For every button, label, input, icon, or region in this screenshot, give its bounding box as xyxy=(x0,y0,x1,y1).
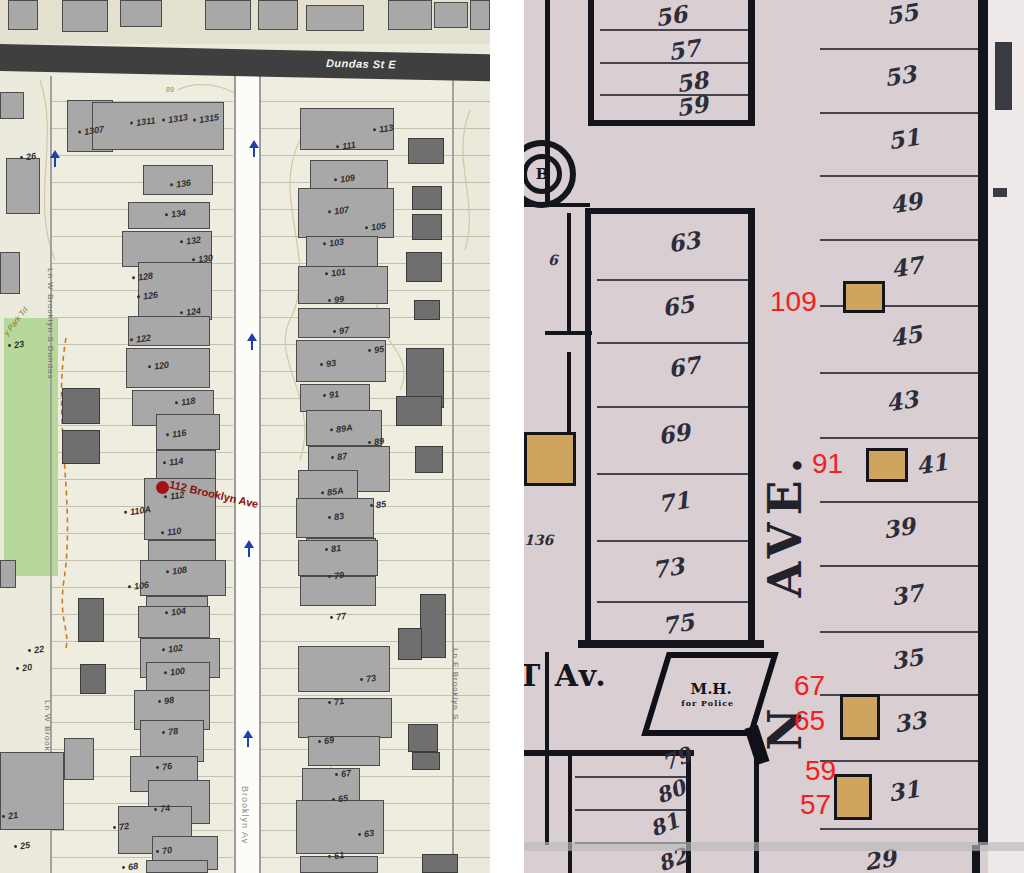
block-border-line xyxy=(567,213,571,335)
lot-number: 69 xyxy=(656,418,692,450)
building xyxy=(146,860,208,873)
contour-elevation-label: 89 xyxy=(166,86,174,93)
one-way-arrow-icon xyxy=(247,333,257,351)
lot-number: 55 xyxy=(884,0,920,29)
building xyxy=(412,214,442,240)
house-number-label: 68 xyxy=(121,861,138,873)
margin-building-fragment xyxy=(993,188,1007,197)
lane-w1-label: Ln W Brooklyn S Dundas xyxy=(46,268,55,379)
lot-line xyxy=(597,473,748,475)
lot-number: 39 xyxy=(881,512,917,544)
building xyxy=(420,594,446,658)
building xyxy=(408,138,444,164)
lot-number: 71 xyxy=(656,486,692,518)
lot-line xyxy=(820,175,978,177)
lot-line xyxy=(600,29,750,31)
building xyxy=(0,560,16,588)
wood-building-icon xyxy=(843,281,885,313)
building xyxy=(6,158,40,214)
edge-measure-label: 6 xyxy=(548,252,558,268)
lot-number: 67 xyxy=(666,351,702,383)
building xyxy=(396,396,442,426)
building xyxy=(412,186,442,210)
building xyxy=(414,300,440,320)
lot-number: 63 xyxy=(666,226,702,258)
lot-line xyxy=(820,239,978,241)
red-address-annotation: 109 xyxy=(770,286,817,318)
lot-number: 49 xyxy=(888,187,924,219)
block-border-line xyxy=(588,120,755,126)
red-address-annotation: 57 xyxy=(800,789,831,821)
lot-number: 56 xyxy=(653,0,689,31)
lot-number: 80 xyxy=(652,774,688,808)
lot-line xyxy=(820,48,978,50)
lot-line xyxy=(820,631,978,633)
lot-number: 45 xyxy=(888,320,924,352)
lot-number: 31 xyxy=(886,775,922,807)
building xyxy=(408,724,438,752)
building xyxy=(0,92,24,119)
lot-number: 59 xyxy=(674,90,710,122)
building xyxy=(120,0,162,27)
lot-number: 47 xyxy=(889,251,925,283)
block-border-line xyxy=(585,208,755,214)
building xyxy=(406,252,442,282)
building xyxy=(434,2,468,28)
block-border-line xyxy=(567,352,571,432)
lot-number: 81 xyxy=(646,807,682,841)
image-divider-gap xyxy=(490,0,524,873)
lot-number: 35 xyxy=(889,643,925,675)
block-border-line xyxy=(588,0,594,126)
block-border-line xyxy=(585,208,591,648)
modern-gis-map[interactable]: y Park Trl Dundas St E Ln W Brooklyn S D… xyxy=(0,0,490,873)
lot-line xyxy=(597,540,748,542)
corner-building-label: M.H. xyxy=(691,680,732,698)
margin-building-fragment xyxy=(995,42,1012,110)
selected-address-dot[interactable] xyxy=(156,481,169,494)
one-way-arrow-icon xyxy=(244,540,254,558)
lot-line xyxy=(820,112,978,114)
one-way-arrow-icon xyxy=(243,730,253,748)
block-border-line xyxy=(578,640,764,648)
building xyxy=(0,252,20,294)
building xyxy=(298,698,392,738)
lot-number: 73 xyxy=(650,552,686,584)
map-comparison-screenshot: y Park Trl Dundas St E Ln W Brooklyn S D… xyxy=(0,0,1024,873)
historic-atlas-map[interactable]: AVE. N B T Av. M.H. for Police 565758596… xyxy=(524,0,1024,873)
lane-east-line xyxy=(452,76,454,873)
lot-number: 53 xyxy=(882,60,918,92)
brooklyn-ave-road xyxy=(234,73,261,873)
lot-number: 43 xyxy=(884,385,920,417)
lot-number: 57 xyxy=(666,34,702,66)
red-address-annotation: 59 xyxy=(805,755,836,787)
building xyxy=(92,102,224,150)
street-name-ave: AVE. xyxy=(754,424,816,624)
edge-measure-label: 136 xyxy=(524,532,553,548)
building xyxy=(470,0,490,30)
lot-line xyxy=(820,437,978,439)
atlas-right-margin xyxy=(988,0,1024,873)
building xyxy=(62,430,100,464)
arrow-stem xyxy=(251,340,253,350)
building xyxy=(78,598,104,642)
dundas-street-label: Dundas St E xyxy=(326,57,397,70)
arrow-stem xyxy=(253,147,255,157)
building xyxy=(388,0,432,30)
lot-number: 75 xyxy=(660,608,696,640)
one-way-arrow-icon xyxy=(50,150,60,168)
lot-line xyxy=(820,565,978,567)
brooklyn-road-label: Brooklyn Av xyxy=(240,786,250,844)
building xyxy=(62,0,108,32)
building xyxy=(422,854,458,873)
building xyxy=(398,628,422,660)
block-border-line xyxy=(748,0,755,126)
wood-building-icon xyxy=(840,694,880,740)
lot-number: 33 xyxy=(892,706,928,738)
one-way-arrow-icon xyxy=(249,140,259,158)
corner-building-sublabel: for Police xyxy=(681,698,734,708)
lot-line xyxy=(820,828,978,830)
lot-line xyxy=(820,501,978,503)
lane-e-label: Ln E Brooklyn S xyxy=(451,648,460,720)
arrow-stem xyxy=(54,157,56,167)
lot-line xyxy=(597,279,748,281)
building xyxy=(80,664,106,694)
cross-street-label: T Av. xyxy=(524,658,608,693)
block-border-line xyxy=(545,331,592,335)
lot-number: 51 xyxy=(886,123,922,155)
red-address-annotation: 67 xyxy=(794,670,825,702)
lot-line xyxy=(597,342,748,344)
lot-number: 41 xyxy=(914,448,950,480)
lot-number: 65 xyxy=(660,290,696,322)
red-address-annotation: 91 xyxy=(812,448,843,480)
block-border-line xyxy=(978,0,988,845)
scan-seam-band xyxy=(524,842,1024,851)
wood-building-icon xyxy=(524,432,576,486)
building xyxy=(258,0,298,30)
lot-line xyxy=(820,372,978,374)
lot-number: 37 xyxy=(889,579,925,611)
building xyxy=(415,446,443,473)
circled-letter-text: B xyxy=(524,154,562,194)
lot-line xyxy=(820,760,978,762)
lot-line xyxy=(597,406,748,408)
building xyxy=(306,5,364,31)
arrow-stem xyxy=(248,547,250,557)
building xyxy=(296,800,384,854)
building xyxy=(412,752,440,770)
block-border-line xyxy=(568,755,572,873)
ave-text: AVE. xyxy=(758,450,812,597)
building xyxy=(205,0,251,30)
building xyxy=(298,646,390,692)
wood-building-icon xyxy=(866,448,908,482)
arrow-stem xyxy=(247,737,249,747)
building xyxy=(8,0,38,30)
building xyxy=(64,738,94,780)
red-address-annotation: 65 xyxy=(794,705,825,737)
lot-line xyxy=(597,601,748,603)
circled-letter-symbol: B xyxy=(524,140,576,208)
wood-building-icon xyxy=(834,774,872,820)
building xyxy=(62,388,100,424)
